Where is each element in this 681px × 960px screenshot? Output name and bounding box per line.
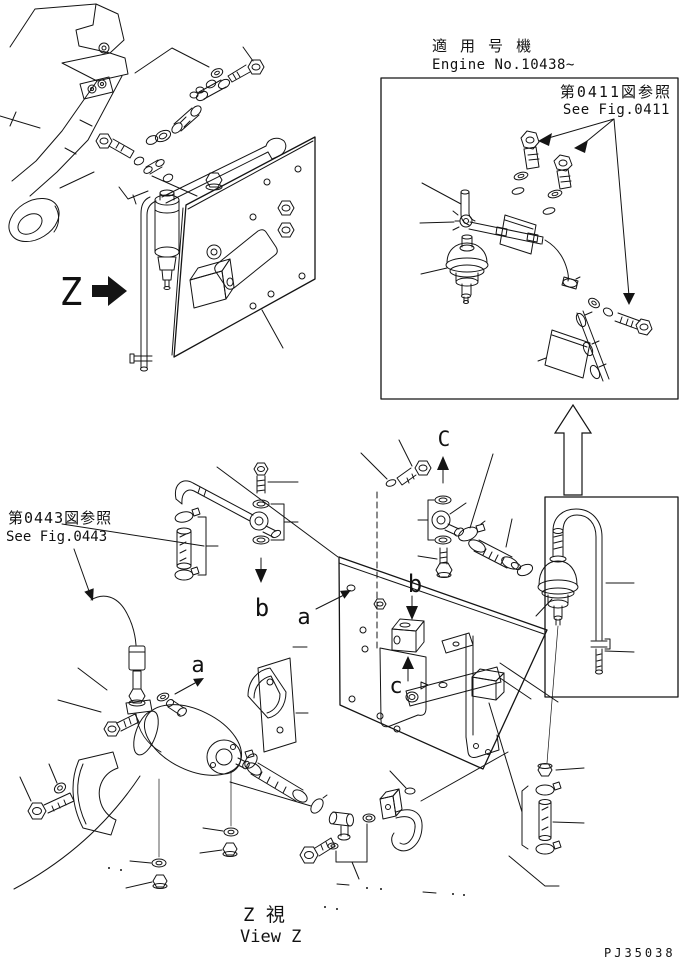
callout-arrow-icon bbox=[538, 133, 552, 146]
applicable-model-label-jp: 適 用 号 機 bbox=[432, 37, 533, 55]
point-b-arrow-icon bbox=[406, 606, 418, 620]
point-a-target-label: a bbox=[297, 605, 310, 630]
see-fig-0443-label-jp: 第0443図参照 bbox=[8, 509, 112, 527]
see-fig-0411-label-en: See Fig.0411 bbox=[563, 102, 670, 118]
z-direction-arrow-icon bbox=[92, 276, 127, 306]
fuel-pump-group: a bbox=[14, 596, 308, 889]
bottom-parts-cluster bbox=[108, 703, 584, 910]
point-b-target-label: b bbox=[408, 570, 422, 598]
point-c-arrow-icon bbox=[402, 656, 414, 669]
enlarge-up-arrow-icon bbox=[555, 405, 591, 495]
engine-assembly bbox=[0, 4, 128, 250]
regulator-detail-box bbox=[536, 497, 678, 763]
fuel-pipe-group: b bbox=[174, 463, 298, 622]
parts-diagram-page: Z 適 用 号 機 Engine No.10438~ 第0411図参照 See … bbox=[0, 0, 681, 960]
point-c-target-label: c bbox=[389, 674, 402, 699]
view-caption-jp: Z 視 bbox=[243, 904, 285, 926]
point-a-arrow-icon bbox=[340, 590, 351, 599]
view-caption-en: View Z bbox=[240, 927, 301, 947]
see-fig-0443-label-en: See Fig.0443 bbox=[6, 529, 107, 545]
callout-arrow-icon bbox=[574, 140, 588, 153]
z-view-pointer: Z bbox=[60, 270, 127, 314]
z-pointer-label: Z bbox=[60, 270, 83, 314]
drawing-code: PJ35038 bbox=[604, 946, 676, 960]
diagram-canvas: Z 適 用 号 機 Engine No.10438~ 第0411図参照 See … bbox=[0, 0, 681, 960]
see-fig-0411-label-jp: 第0411図参照 bbox=[560, 83, 672, 101]
engine-number-label: Engine No.10438~ bbox=[432, 57, 575, 73]
footer-labels: Z 視 View Z PJ35038 bbox=[240, 904, 676, 960]
point-b-source-label: b bbox=[255, 594, 269, 622]
point-a-source-label: a bbox=[191, 653, 204, 678]
view-c-group: C bbox=[361, 427, 534, 578]
fig0411-detail-box: 第0411図参照 See Fig.0411 bbox=[381, 78, 678, 399]
view-c-label: C bbox=[438, 427, 451, 451]
fig0443-reference: 第0443図参照 See Fig.0443 bbox=[6, 509, 204, 601]
point-b-arrow-icon bbox=[255, 569, 267, 583]
header-labels: 適 用 号 機 Engine No.10438~ bbox=[432, 37, 575, 73]
callout-arrow-icon bbox=[623, 293, 635, 305]
point-a-arrow-icon bbox=[193, 678, 204, 687]
view-c-arrow-icon bbox=[437, 456, 449, 470]
upper-mounting-plate bbox=[130, 137, 315, 371]
